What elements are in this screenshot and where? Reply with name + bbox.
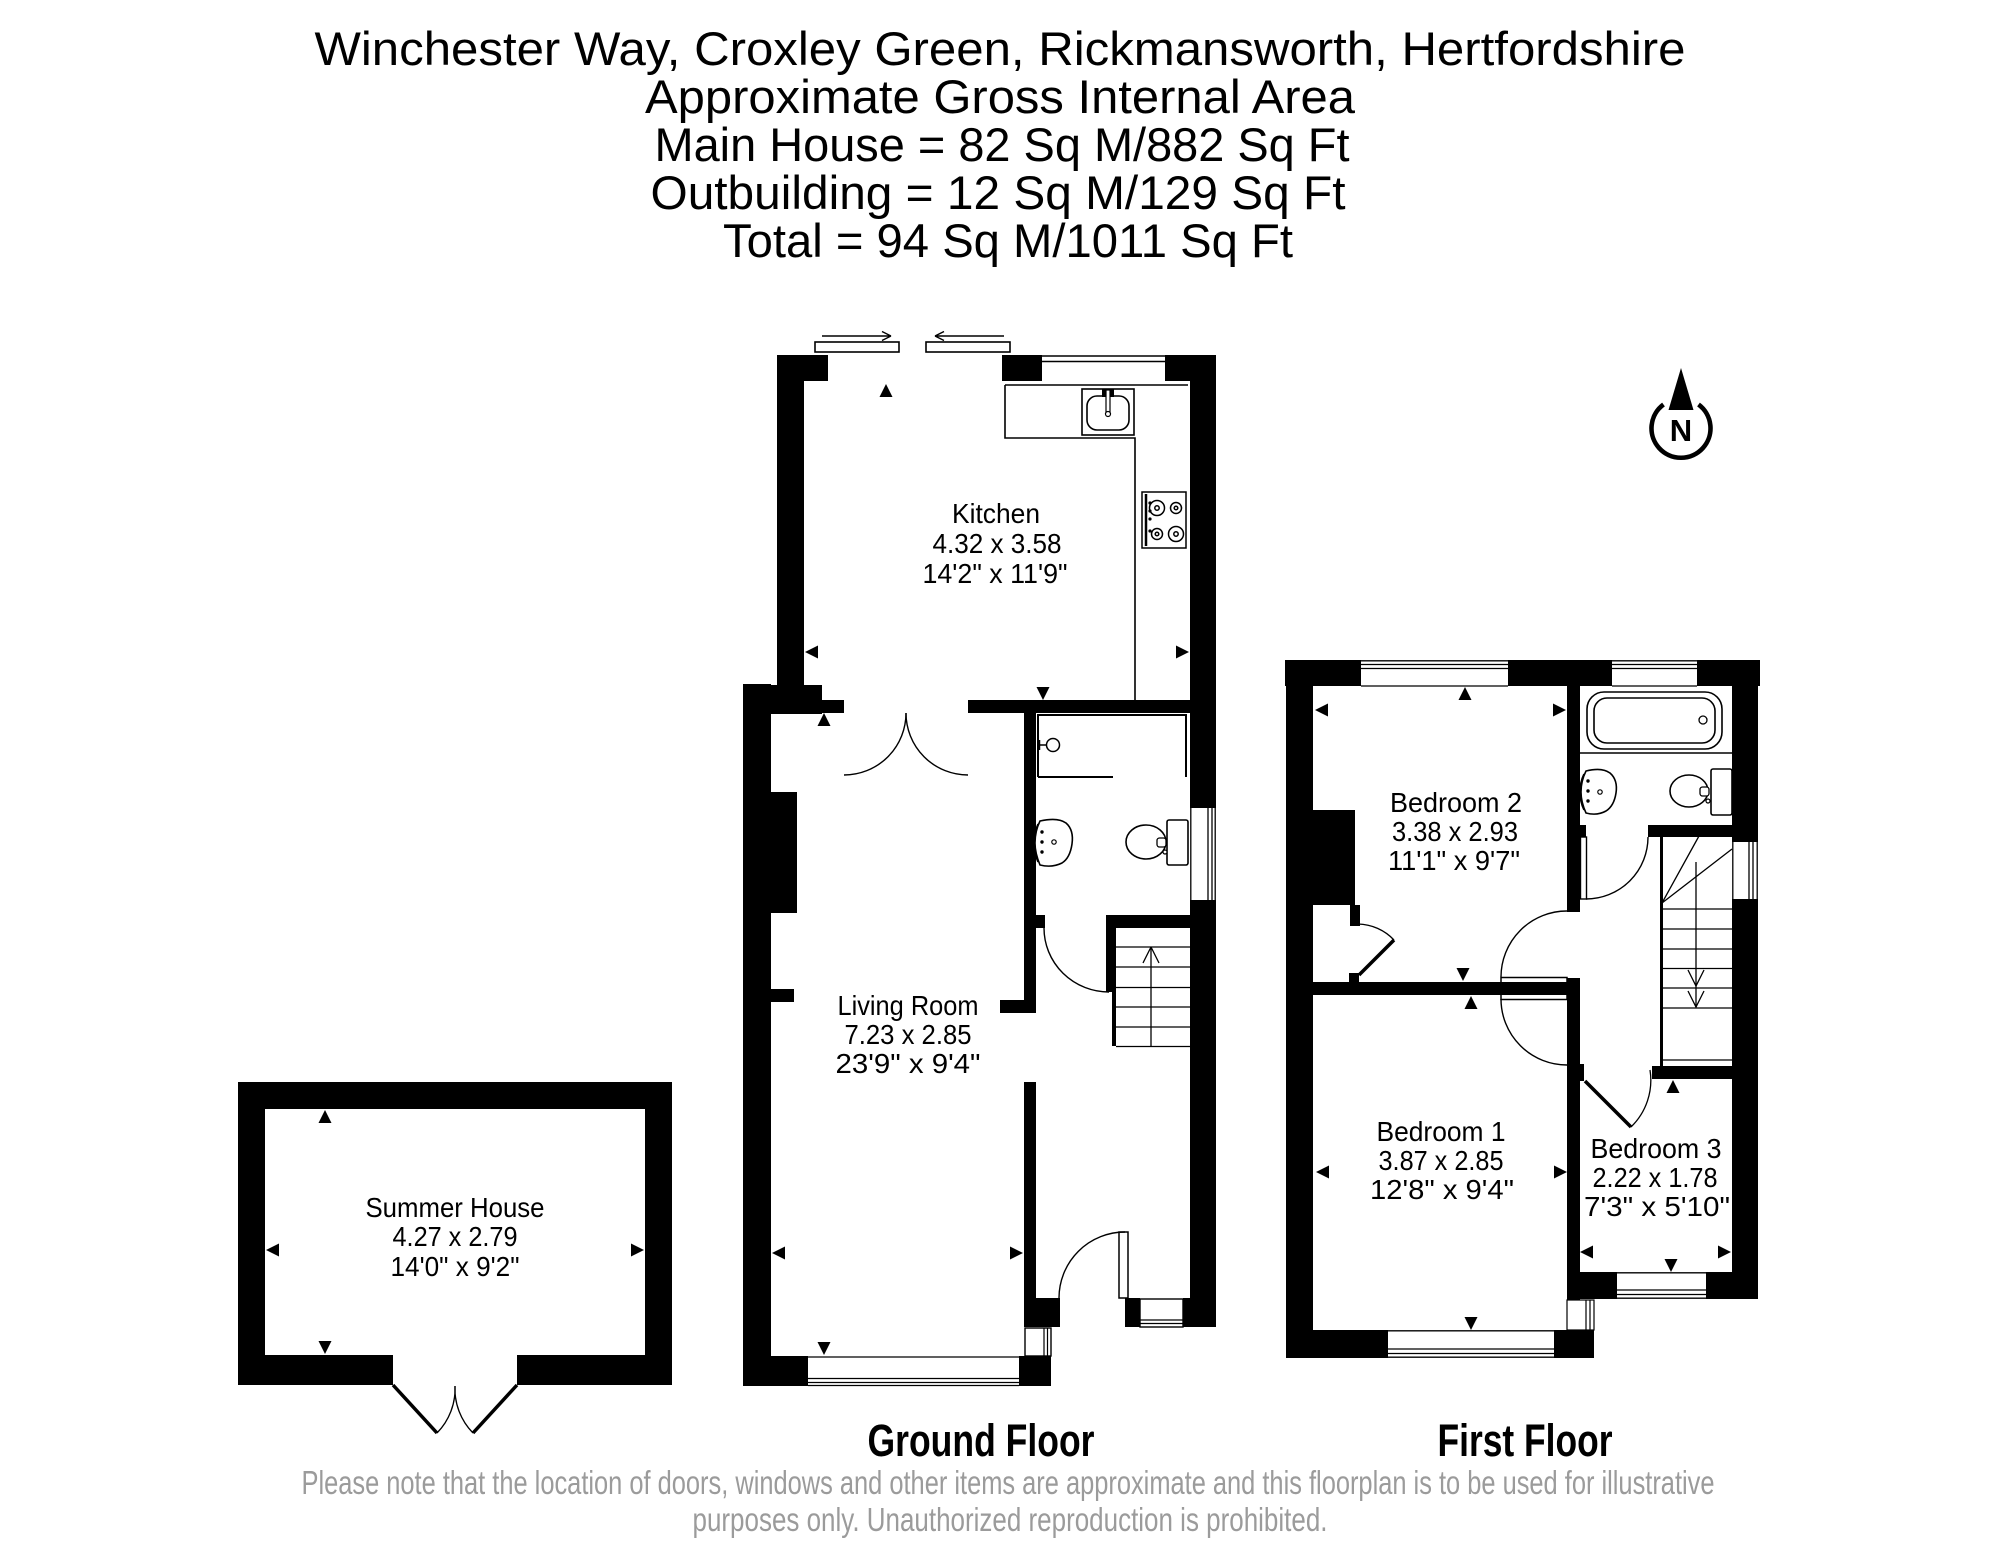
svg-text:Approximate Gross Internal Are: Approximate Gross Internal Area: [645, 70, 1356, 123]
svg-text:7.23 x 2.85: 7.23 x 2.85: [845, 1019, 972, 1050]
svg-text:4.27 x 2.79: 4.27 x 2.79: [393, 1221, 518, 1252]
svg-text:7'3" x 5'10": 7'3" x 5'10": [1584, 1191, 1730, 1222]
svg-text:14'0" x 9'2": 14'0" x 9'2": [391, 1251, 520, 1282]
svg-text:2.22 x 1.78: 2.22 x 1.78: [1593, 1162, 1718, 1193]
svg-text:3.38 x 2.93: 3.38 x 2.93: [1392, 816, 1518, 847]
svg-text:First Floor: First Floor: [1438, 1415, 1613, 1466]
svg-text:4.32 x 3.58: 4.32 x 3.58: [933, 528, 1062, 559]
svg-text:Summer House: Summer House: [366, 1192, 545, 1223]
svg-text:Winchester Way, Croxley Green,: Winchester Way, Croxley Green, Rickmansw…: [315, 22, 1686, 75]
svg-text:Bedroom 3: Bedroom 3: [1591, 1133, 1722, 1164]
svg-text:Kitchen: Kitchen: [952, 498, 1040, 529]
svg-text:N: N: [1670, 413, 1692, 448]
svg-text:3.87 x 2.85: 3.87 x 2.85: [1379, 1145, 1504, 1176]
svg-text:23'9" x 9'4": 23'9" x 9'4": [836, 1048, 981, 1079]
svg-text:14'2" x 11'9": 14'2" x 11'9": [923, 558, 1068, 589]
svg-text:Living Room: Living Room: [838, 990, 979, 1021]
svg-text:Total = 94 Sq M/1011 Sq Ft: Total = 94 Sq M/1011 Sq Ft: [723, 214, 1293, 267]
svg-text:Outbuilding = 12 Sq M/129 Sq F: Outbuilding = 12 Sq M/129 Sq Ft: [651, 166, 1346, 219]
svg-text:Ground Floor: Ground Floor: [868, 1415, 1095, 1466]
svg-text:Please note that the location: Please note that the location of doors, …: [302, 1464, 1715, 1501]
svg-text:Bedroom 1: Bedroom 1: [1377, 1116, 1506, 1147]
svg-text:purposes only. Unauthorized re: purposes only. Unauthorized reproduction…: [693, 1501, 1328, 1538]
svg-text:Bedroom 2: Bedroom 2: [1390, 787, 1522, 818]
svg-text:11'1" x 9'7": 11'1" x 9'7": [1388, 845, 1520, 876]
svg-text:Main House = 82 Sq M/882 Sq Ft: Main House = 82 Sq M/882 Sq Ft: [655, 118, 1350, 171]
svg-text:12'8" x 9'4": 12'8" x 9'4": [1370, 1174, 1514, 1205]
